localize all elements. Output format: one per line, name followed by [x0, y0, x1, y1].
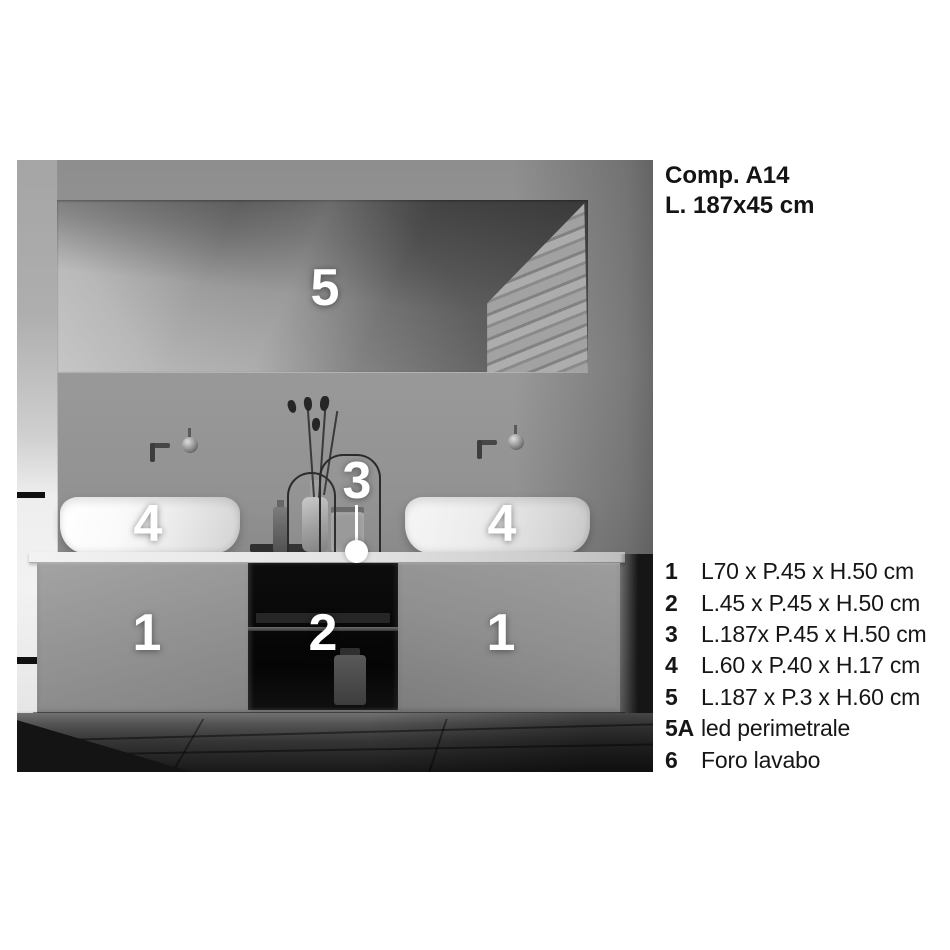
- callout-2-shelf: 2: [309, 607, 338, 659]
- bottle: [273, 507, 288, 552]
- faucet-left-knob: [182, 437, 198, 453]
- legend-desc: L70 x P.45 x H.50 cm: [701, 558, 914, 585]
- flower-bud: [303, 397, 312, 412]
- legend-row-5: 5 L.187 x P.3 x H.60 cm: [665, 682, 947, 713]
- floor-seam: [172, 719, 205, 772]
- callout-1-door-left: 1: [133, 607, 162, 659]
- legend-row-2: 2 L.45 x P.45 x H.50 cm: [665, 587, 947, 618]
- callout-1-door-right: 1: [487, 607, 516, 659]
- legend-desc: L.45 x P.45 x H.50 cm: [701, 590, 920, 617]
- faucet-left-spout-drop: [150, 443, 155, 462]
- legend-num: 5A: [665, 715, 701, 742]
- legend-num: 6: [665, 747, 701, 774]
- countertop: [29, 552, 625, 563]
- floor-seam: [77, 723, 653, 740]
- legend-desc: L.187x P.45 x H.50 cm: [701, 621, 927, 648]
- product-model: Comp. A14: [665, 161, 814, 191]
- legend-num: 3: [665, 621, 701, 648]
- storage-jar: [334, 655, 366, 705]
- product-header: Comp. A14 L. 187x45 cm: [665, 161, 814, 221]
- parts-legend: 1 L70 x P.45 x H.50 cm 2 L.45 x P.45 x H…: [665, 556, 947, 776]
- legend-desc: Foro lavabo: [701, 747, 820, 774]
- flower-bud: [312, 418, 321, 431]
- legend-row-3: 3 L.187x P.45 x H.50 cm: [665, 619, 947, 650]
- product-photo: 5 4 3 4 1 2 1: [17, 160, 653, 772]
- flower-bud: [319, 395, 330, 411]
- product-size: L. 187x45 cm: [665, 191, 814, 221]
- callout-4-basin-right: 4: [488, 498, 517, 550]
- legend-row-5a: 5A led perimetrale: [665, 713, 947, 744]
- legend-num: 5: [665, 684, 701, 711]
- marker-dot-icon: [345, 540, 368, 563]
- faucet-right-spout-drop: [477, 440, 482, 459]
- callout-5-mirror: 5: [311, 262, 340, 314]
- callout-4-basin-left: 4: [134, 498, 163, 550]
- legend-desc: L.187 x P.3 x H.60 cm: [701, 684, 920, 711]
- legend-num: 1: [665, 558, 701, 585]
- legend-desc: L.60 x P.40 x H.17 cm: [701, 652, 920, 679]
- legend-desc: led perimetrale: [701, 715, 850, 742]
- page: { "header": { "model": "Comp. A14", "siz…: [0, 0, 950, 950]
- legend-num: 2: [665, 590, 701, 617]
- faucet-right-knob: [508, 434, 524, 450]
- flower-bud: [286, 399, 297, 414]
- wall-hook-left-upper: [17, 492, 45, 498]
- legend-row-1: 1 L70 x P.45 x H.50 cm: [665, 556, 947, 587]
- callout-3-pointer-line: [355, 505, 358, 542]
- legend-row-6: 6 Foro lavabo: [665, 744, 947, 775]
- callout-3-top: 3: [343, 455, 372, 507]
- floor-shadow-wedge: [17, 713, 192, 772]
- floor: [17, 713, 653, 772]
- legend-num: 4: [665, 652, 701, 679]
- floor-seam: [428, 719, 447, 772]
- legend-row-4: 4 L.60 x P.40 x H.17 cm: [665, 650, 947, 681]
